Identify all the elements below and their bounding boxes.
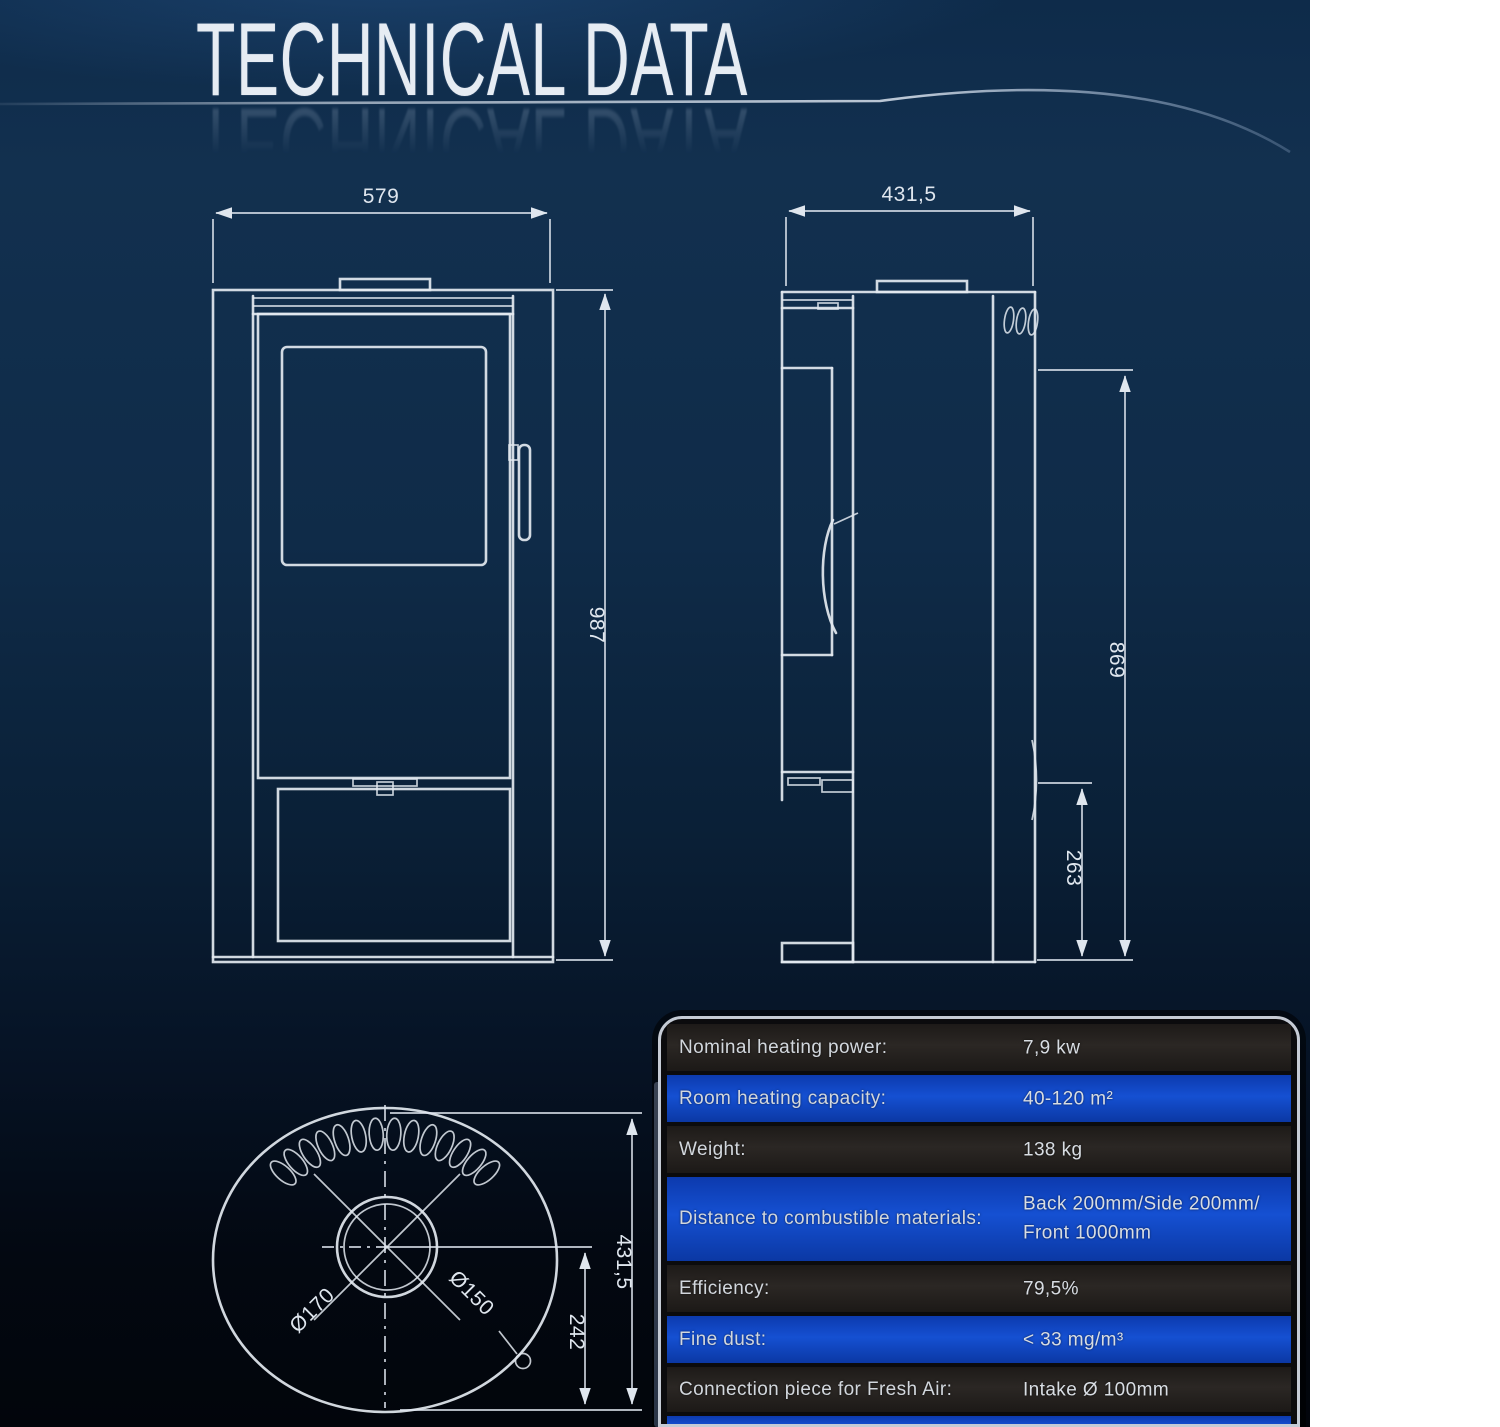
side-base-dimension: 263 bbox=[1062, 850, 1085, 887]
table-row: Connection piece for Fresh Air: Intake Ø… bbox=[667, 1367, 1291, 1412]
door-handle-side bbox=[823, 520, 836, 633]
header-swoosh bbox=[0, 90, 1290, 152]
front-view-drawing: 579 bbox=[213, 185, 613, 962]
table-row: Weight: 138 kg bbox=[667, 1126, 1291, 1173]
row-value: < 33 mg/m³ bbox=[1023, 1325, 1124, 1354]
top-offset-dimension: 242 bbox=[565, 1314, 588, 1351]
row-label: Room heating capacity: bbox=[679, 1088, 886, 1110]
front-height-dimension: 987 bbox=[585, 607, 608, 644]
spec-table: Nominal heating power: 7,9 kw Room heati… bbox=[658, 1016, 1300, 1427]
row-label: Efficiency: bbox=[679, 1278, 770, 1300]
top-depth-dimension: 431,5 bbox=[612, 1234, 635, 1289]
side-height-dimension: 869 bbox=[1105, 642, 1128, 679]
table-row: Room heating capacity: 40-120 m² bbox=[667, 1075, 1291, 1122]
technical-data-sheet: TECHNICAL DATA TECHNICAL DATA .ln{stroke… bbox=[0, 0, 1500, 1427]
table-row: Fine dust: < 33 mg/m³ bbox=[667, 1316, 1291, 1363]
outer-diameter-label: Ø170 bbox=[285, 1284, 339, 1338]
row-value: 7,9 kw bbox=[1023, 1033, 1080, 1062]
row-value: Intake Ø 100mm bbox=[1023, 1375, 1169, 1404]
row-value: 79,5% bbox=[1023, 1274, 1079, 1303]
front-width-dimension: 579 bbox=[363, 185, 400, 208]
row-label: Connection piece for Fresh Air: bbox=[679, 1379, 952, 1401]
row-value: Back 200mm/Side 200mm/ Front 1000mm bbox=[1023, 1190, 1260, 1249]
row-label: Distance to combustible materials: bbox=[679, 1208, 982, 1230]
row-label: Weight: bbox=[679, 1139, 746, 1161]
table-row: Efficiency: 79,5% bbox=[667, 1265, 1291, 1312]
row-label: Nominal heating power: bbox=[679, 1037, 887, 1059]
top-handle bbox=[516, 1354, 531, 1369]
row-label: Fine dust: bbox=[679, 1329, 766, 1351]
row-value: 40-120 m² bbox=[1023, 1084, 1113, 1113]
table-row: Nominal heating power: 7,9 kw bbox=[667, 1024, 1291, 1071]
side-depth-dimension: 431,5 bbox=[881, 183, 936, 206]
side-view-drawing: 431,5 bbox=[782, 183, 1133, 962]
door-handle-front bbox=[519, 445, 530, 540]
blueprint-canvas: TECHNICAL DATA TECHNICAL DATA .ln{stroke… bbox=[0, 0, 1310, 1427]
table-row: Distance to combustible materials: Back … bbox=[667, 1177, 1291, 1261]
row-value: 138 kg bbox=[1023, 1135, 1082, 1164]
table-row-clipped bbox=[667, 1416, 1291, 1427]
top-view-drawing: Ø170 Ø150 431,5 242 bbox=[213, 1105, 642, 1412]
